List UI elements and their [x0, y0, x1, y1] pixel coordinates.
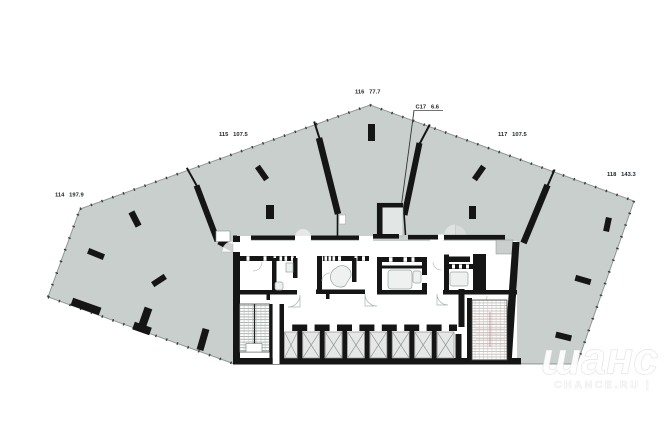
svg-text:CHANCE.RU |: CHANCE.RU |: [554, 379, 651, 391]
svg-text:шанс: шанс: [541, 333, 658, 384]
svg-text:117 107.5: 117 107.5: [498, 132, 527, 138]
svg-text:118 143.3: 118 143.3: [607, 172, 636, 178]
svg-text:114 197.9: 114 197.9: [55, 193, 84, 199]
svg-text:C17 6.6: C17 6.6: [416, 105, 440, 111]
svg-text:116 77.7: 116 77.7: [355, 90, 380, 96]
svg-text:115 107.5: 115 107.5: [219, 132, 248, 138]
